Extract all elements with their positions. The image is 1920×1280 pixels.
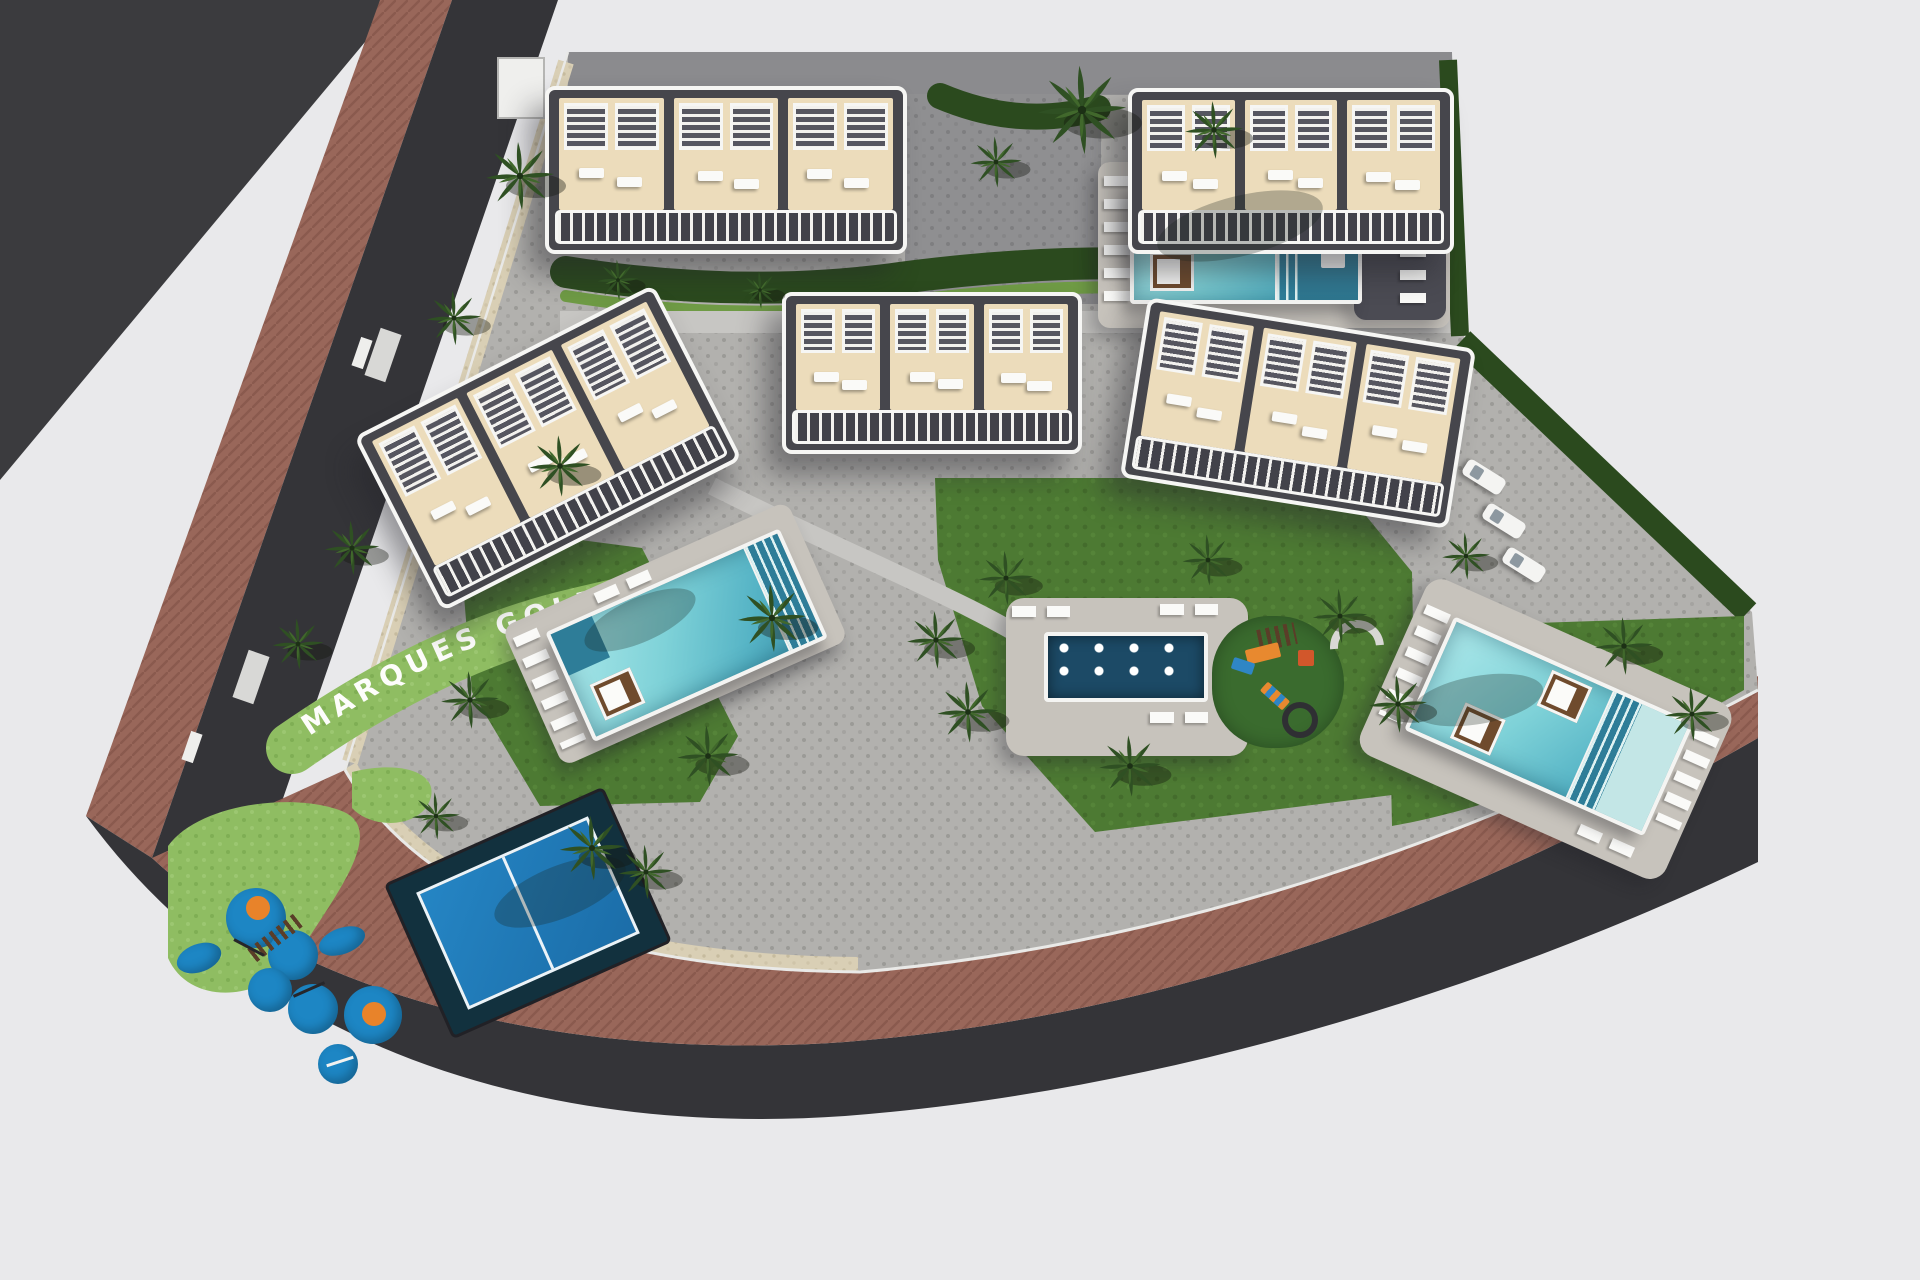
sun-lounger xyxy=(1166,393,1192,407)
sun-lounger xyxy=(617,403,644,423)
roof-terrace xyxy=(801,357,875,405)
pool-daybed xyxy=(589,667,645,721)
sun-lounger xyxy=(1366,172,1391,182)
building-block-d xyxy=(782,292,1082,454)
pergola-roof xyxy=(801,309,835,353)
townhouse-unit xyxy=(1347,100,1440,210)
townhouse-unit xyxy=(890,304,974,410)
sun-lounger xyxy=(527,453,554,473)
pergola-roof xyxy=(615,103,659,150)
building-block-a xyxy=(545,86,907,254)
pergola-roof xyxy=(1352,105,1390,151)
roof-terrace xyxy=(793,154,888,205)
pergola-roof xyxy=(936,309,970,353)
pergola-roof xyxy=(679,103,723,150)
pergola-roof xyxy=(793,103,837,150)
sun-lounger xyxy=(1298,178,1323,188)
sun-lounger-row xyxy=(1160,604,1218,615)
sun-lounger xyxy=(910,372,935,382)
sun-lounger xyxy=(842,380,867,390)
sun-lounger xyxy=(561,448,588,468)
townhouse-unit xyxy=(984,304,1068,410)
playground-pad-circle xyxy=(288,984,338,1034)
sun-lounger xyxy=(1402,440,1428,454)
balcony-row xyxy=(555,210,897,244)
sun-lounger-row xyxy=(1012,606,1070,617)
sun-lounger xyxy=(1027,381,1052,391)
sun-lounger xyxy=(938,379,963,389)
sun-lounger xyxy=(465,495,492,515)
sun-lounger xyxy=(652,399,679,419)
townhouse-unit xyxy=(559,98,664,210)
pergola-roof xyxy=(1030,309,1064,353)
pergola-roof xyxy=(1147,105,1185,151)
sun-lounger xyxy=(1395,180,1420,190)
roof-terrace xyxy=(1250,390,1343,461)
townhouse-unit xyxy=(1347,344,1460,483)
townhouse-unit xyxy=(788,98,893,210)
pergola-roof xyxy=(844,103,888,150)
pergola-roof xyxy=(842,309,876,353)
sun-lounger xyxy=(1193,179,1218,189)
roof-terrace xyxy=(679,154,774,205)
water-jets xyxy=(1056,640,1196,686)
townhouse-unit xyxy=(1245,100,1338,210)
pergola-roof xyxy=(564,103,608,150)
pergola-roof xyxy=(1305,340,1352,399)
roof-terrace xyxy=(1353,406,1446,477)
pergola-roof xyxy=(730,103,774,150)
pergola-roof xyxy=(1259,333,1306,392)
pergola-roof xyxy=(1363,350,1410,409)
site-plan-render: MARQUES GOLF xyxy=(0,0,1920,1280)
sun-lounger xyxy=(814,372,839,382)
roof-terrace xyxy=(1250,155,1333,205)
court-center-line xyxy=(502,857,554,970)
balcony-row xyxy=(1138,210,1444,244)
pool-daybed xyxy=(1449,702,1505,756)
playground-pad-circle xyxy=(318,1044,358,1084)
townhouse-unit xyxy=(1141,311,1254,450)
roof-terrace xyxy=(1352,155,1435,205)
sun-lounger-row xyxy=(1150,712,1208,723)
sun-lounger xyxy=(1371,425,1397,439)
balcony-row xyxy=(792,410,1072,444)
pergola-roof xyxy=(1156,317,1203,376)
playground-pad-circle xyxy=(248,968,292,1012)
townhouse-unit xyxy=(1142,100,1235,210)
sun-lounger xyxy=(1196,408,1222,422)
sun-lounger xyxy=(1268,170,1293,180)
pergola-roof xyxy=(1295,105,1333,151)
ground-layer: MARQUES GOLF xyxy=(0,0,1920,1280)
sun-lounger xyxy=(617,177,642,187)
sun-lounger xyxy=(844,178,869,188)
sun-lounger xyxy=(734,179,759,189)
sun-lounger xyxy=(430,500,457,520)
sun-lounger xyxy=(1301,425,1327,439)
sun-lounger xyxy=(1001,373,1026,383)
roof-terrace xyxy=(1146,374,1239,445)
townhouse-unit xyxy=(796,304,880,410)
townhouse-unit xyxy=(1244,328,1357,467)
sun-lounger xyxy=(1271,411,1297,425)
pergola-roof xyxy=(1192,105,1230,151)
building-block-b xyxy=(1128,88,1454,254)
sun-lounger xyxy=(1162,171,1187,181)
play-structure xyxy=(1298,650,1314,666)
pergola-roof xyxy=(989,309,1023,353)
pool-daybed xyxy=(1536,669,1592,723)
roof-terrace xyxy=(1147,155,1230,205)
pergola-roof xyxy=(1201,324,1248,383)
sun-lounger xyxy=(698,171,723,181)
pool-daybed xyxy=(1150,252,1194,291)
spinner-ring xyxy=(1282,702,1318,738)
sun-lounger xyxy=(807,169,832,179)
utility-cabin xyxy=(498,58,544,118)
roof-terrace xyxy=(989,357,1063,405)
playground-orange-disc xyxy=(246,896,270,920)
townhouse-unit xyxy=(674,98,779,210)
pergola-roof xyxy=(895,309,929,353)
sun-lounger-row xyxy=(1104,176,1130,314)
roof-terrace xyxy=(895,357,969,405)
roof-terrace xyxy=(564,154,659,205)
sun-lounger xyxy=(579,168,604,178)
pergola-roof xyxy=(1408,357,1455,416)
playground-orange-disc xyxy=(362,1002,386,1026)
pergola-roof xyxy=(1250,105,1288,151)
pergola-roof xyxy=(1397,105,1435,151)
